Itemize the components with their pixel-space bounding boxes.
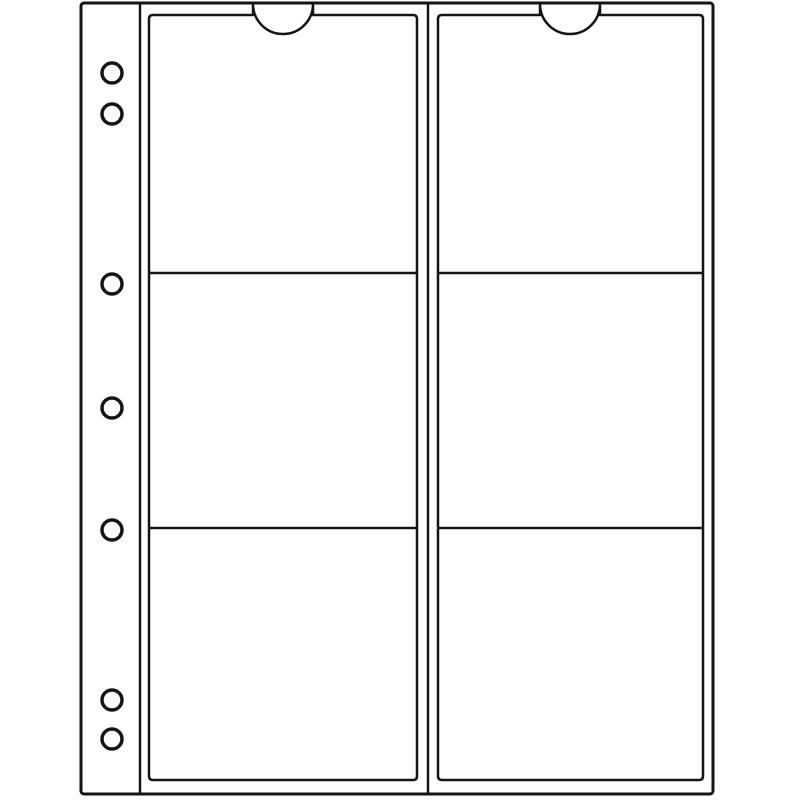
product-image [0,0,800,800]
binder-hole-7 [102,729,122,749]
binder-hole-2 [102,104,122,124]
pocket-column-left-outline [149,4,417,780]
binder-hole-4 [102,398,122,418]
coin-pocket-sheet-drawing [0,0,800,800]
binder-hole-5 [102,520,122,540]
binder-hole-3 [102,274,122,294]
pocket-column-right-outline [438,4,703,780]
binder-hole-6 [102,690,122,710]
binder-hole-1 [102,63,122,83]
